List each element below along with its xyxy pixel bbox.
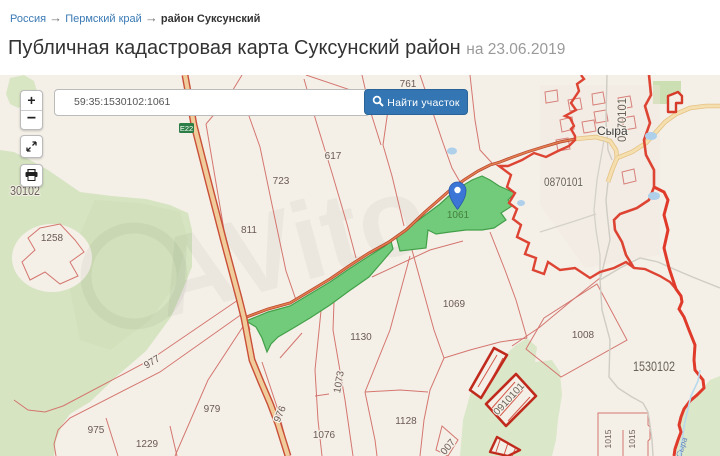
svg-text:1015: 1015 (627, 429, 637, 448)
svg-text:1130: 1130 (350, 332, 372, 343)
svg-text:Сыра: Сыра (597, 124, 628, 138)
svg-text:1128: 1128 (395, 416, 417, 427)
svg-text:975: 975 (88, 425, 105, 436)
svg-text:1069: 1069 (443, 299, 466, 310)
svg-text:723: 723 (273, 176, 290, 187)
svg-text:1061: 1061 (447, 210, 470, 221)
svg-text:1076: 1076 (313, 430, 336, 441)
svg-text:1008: 1008 (572, 330, 595, 341)
svg-text:E22: E22 (180, 124, 193, 133)
svg-text:1530102: 1530102 (633, 358, 675, 374)
svg-text:811: 811 (241, 225, 257, 236)
svg-text:1015: 1015 (603, 429, 613, 448)
svg-text:617: 617 (325, 151, 342, 162)
svg-text:1258: 1258 (41, 233, 64, 244)
svg-text:1229: 1229 (136, 439, 159, 450)
svg-text:0870101: 0870101 (544, 175, 583, 189)
svg-text:979: 979 (204, 404, 221, 415)
